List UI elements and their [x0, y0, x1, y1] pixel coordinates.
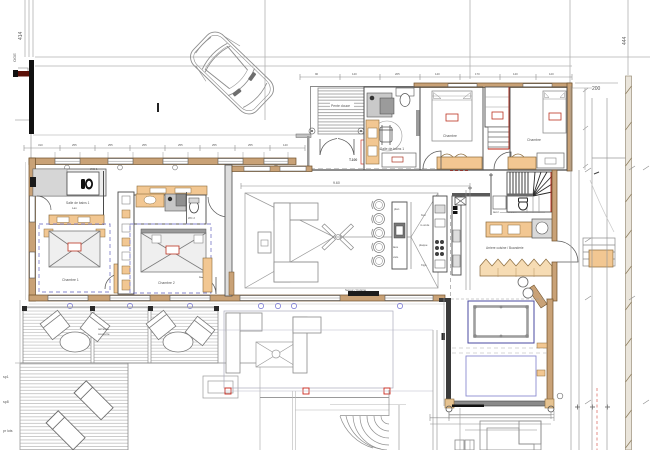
svg-text:sp8: sp8 — [3, 400, 9, 404]
svg-text:90: 90 — [315, 72, 319, 76]
svg-text:310: 310 — [38, 143, 43, 147]
svg-text:170: 170 — [475, 72, 480, 76]
svg-text:120: 120 — [549, 72, 554, 76]
svg-text:140: 140 — [435, 72, 440, 76]
svg-text:plan: plan — [394, 207, 400, 211]
svg-text:Chambre: Chambre — [527, 138, 541, 142]
svg-text:140: 140 — [352, 72, 357, 76]
svg-text:WC 2: WC 2 — [188, 216, 195, 220]
svg-text:Chambre: Chambre — [443, 134, 457, 138]
svg-text:255: 255 — [142, 143, 147, 147]
svg-text:Sejour / Cuisine: Sejour / Cuisine — [345, 288, 367, 292]
svg-text:four: four — [421, 213, 426, 217]
svg-text:lave: lave — [393, 245, 399, 249]
svg-text:T.100: T.100 — [349, 158, 357, 162]
svg-text:couverte: couverte — [98, 332, 110, 336]
svg-text:140: 140 — [513, 72, 518, 76]
svg-text:9.60: 9.60 — [333, 181, 340, 185]
svg-text:255: 255 — [178, 143, 183, 147]
svg-text:255: 255 — [108, 143, 113, 147]
svg-text:terrasse: terrasse — [98, 327, 109, 331]
svg-text:414: 414 — [18, 31, 24, 40]
svg-text:frigo: frigo — [421, 263, 427, 267]
svg-text:Arriere cuisine / Buanderie: Arriere cuisine / Buanderie — [486, 246, 524, 250]
svg-text:255: 255 — [212, 143, 217, 147]
svg-text:Chambre 1: Chambre 1 — [62, 278, 79, 282]
svg-text:vais.: vais. — [393, 255, 399, 259]
svg-text:Chambre 2: Chambre 2 — [158, 281, 175, 285]
svg-text:m.onde: m.onde — [420, 223, 430, 227]
svg-text:Lav: Lav — [72, 206, 77, 210]
svg-text:OGE: OGE — [12, 53, 17, 62]
svg-text:255: 255 — [248, 143, 253, 147]
svg-text:444: 444 — [622, 36, 628, 45]
svg-text:Salle de bains 1: Salle de bains 1 — [66, 201, 90, 205]
svg-text:sp1: sp1 — [3, 375, 9, 379]
svg-text:Pente douce: Pente douce — [331, 104, 350, 108]
svg-text:140: 140 — [283, 143, 288, 147]
svg-text:pr lots: pr lots — [3, 429, 13, 433]
svg-text:plaque: plaque — [419, 243, 428, 247]
svg-text:lave l.: lave l. — [493, 210, 500, 214]
svg-text:Salle de bains 1: Salle de bains 1 — [380, 147, 404, 151]
svg-text:205: 205 — [395, 72, 400, 76]
svg-text:200: 200 — [592, 86, 601, 92]
svg-text:WC 1: WC 1 — [90, 167, 98, 171]
svg-text:255: 255 — [72, 143, 77, 147]
